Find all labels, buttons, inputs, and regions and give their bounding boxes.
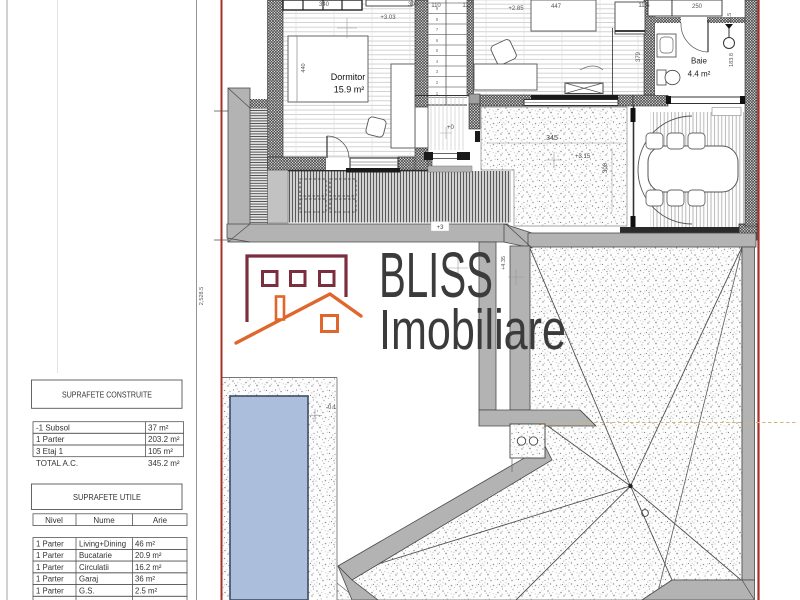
svg-text:300: 300 — [408, 2, 419, 8]
svg-text:Arie: Arie — [153, 516, 168, 525]
svg-text:+3: +3 — [437, 225, 445, 231]
svg-text:SUPRAFETE CONSTRUITE: SUPRAFETE CONSTRUITE — [62, 390, 152, 400]
svg-text:-1 Subsol: -1 Subsol — [36, 424, 70, 433]
svg-text:Baie: Baie — [691, 57, 708, 66]
svg-text:SUPRAFETE UTILE: SUPRAFETE UTILE — [73, 492, 141, 502]
svg-text:110: 110 — [431, 3, 441, 9]
svg-text:TOTAL A.C.: TOTAL A.C. — [36, 459, 78, 468]
svg-text:379: 379 — [636, 51, 642, 62]
svg-text:1 Parter: 1 Parter — [36, 539, 64, 548]
svg-text:Dormitor: Dormitor — [331, 72, 366, 82]
svg-text:3 Etaj 1: 3 Etaj 1 — [36, 447, 64, 456]
svg-text:440: 440 — [301, 63, 307, 72]
svg-text:36 m²: 36 m² — [135, 575, 155, 584]
svg-text:Garaj: Garaj — [79, 575, 98, 584]
svg-text:20.9 m²: 20.9 m² — [135, 551, 162, 560]
svg-text:G.S.: G.S. — [79, 586, 95, 595]
svg-text:300: 300 — [603, 162, 609, 173]
svg-text:203.2 m²: 203.2 m² — [148, 435, 180, 444]
svg-text:183.8: 183.8 — [729, 53, 735, 67]
svg-text:340: 340 — [319, 2, 330, 8]
svg-text:105 m²: 105 m² — [148, 447, 173, 456]
svg-text:1 Parter: 1 Parter — [36, 551, 64, 560]
svg-text:11.5: 11.5 — [638, 3, 650, 9]
svg-text:+2.85: +2.85 — [508, 6, 524, 12]
svg-text:2.5 m²: 2.5 m² — [135, 586, 157, 595]
svg-text:-0.1: -0.1 — [326, 405, 337, 411]
svg-text:1 Parter: 1 Parter — [36, 575, 64, 584]
svg-text:46 m²: 46 m² — [135, 539, 155, 548]
svg-text:447: 447 — [551, 4, 562, 10]
svg-text:Nivel: Nivel — [45, 516, 63, 525]
svg-text:1 Parter: 1 Parter — [36, 435, 65, 444]
svg-text:Nume: Nume — [93, 516, 115, 525]
svg-text:Bucatarie: Bucatarie — [79, 551, 112, 560]
svg-text:11.5: 11.5 — [462, 3, 474, 9]
svg-text:Living+Dining: Living+Dining — [79, 539, 126, 548]
svg-text:2,528.5: 2,528.5 — [199, 287, 205, 305]
svg-text:345.2 m²: 345.2 m² — [148, 459, 180, 468]
svg-text:+3.15: +3.15 — [575, 154, 591, 160]
svg-text:+3.03: +3.03 — [380, 15, 396, 21]
svg-text:11.5: 11.5 — [727, 13, 733, 23]
svg-text:1 Parter: 1 Parter — [36, 586, 64, 595]
svg-text:4.4 m²: 4.4 m² — [688, 70, 711, 79]
svg-text:Imobiliare: Imobiliare — [379, 298, 566, 362]
svg-text:+4.35: +4.35 — [501, 256, 507, 270]
svg-text:37 m²: 37 m² — [148, 424, 169, 433]
svg-text:Circulatii: Circulatii — [79, 563, 109, 572]
svg-text:250: 250 — [692, 4, 703, 10]
svg-text:15.9 m²: 15.9 m² — [334, 85, 365, 95]
svg-text:345: 345 — [546, 135, 558, 142]
svg-text:+0: +0 — [447, 125, 455, 131]
svg-text:16.2 m²: 16.2 m² — [135, 563, 162, 572]
svg-text:1 Parter: 1 Parter — [36, 563, 64, 572]
